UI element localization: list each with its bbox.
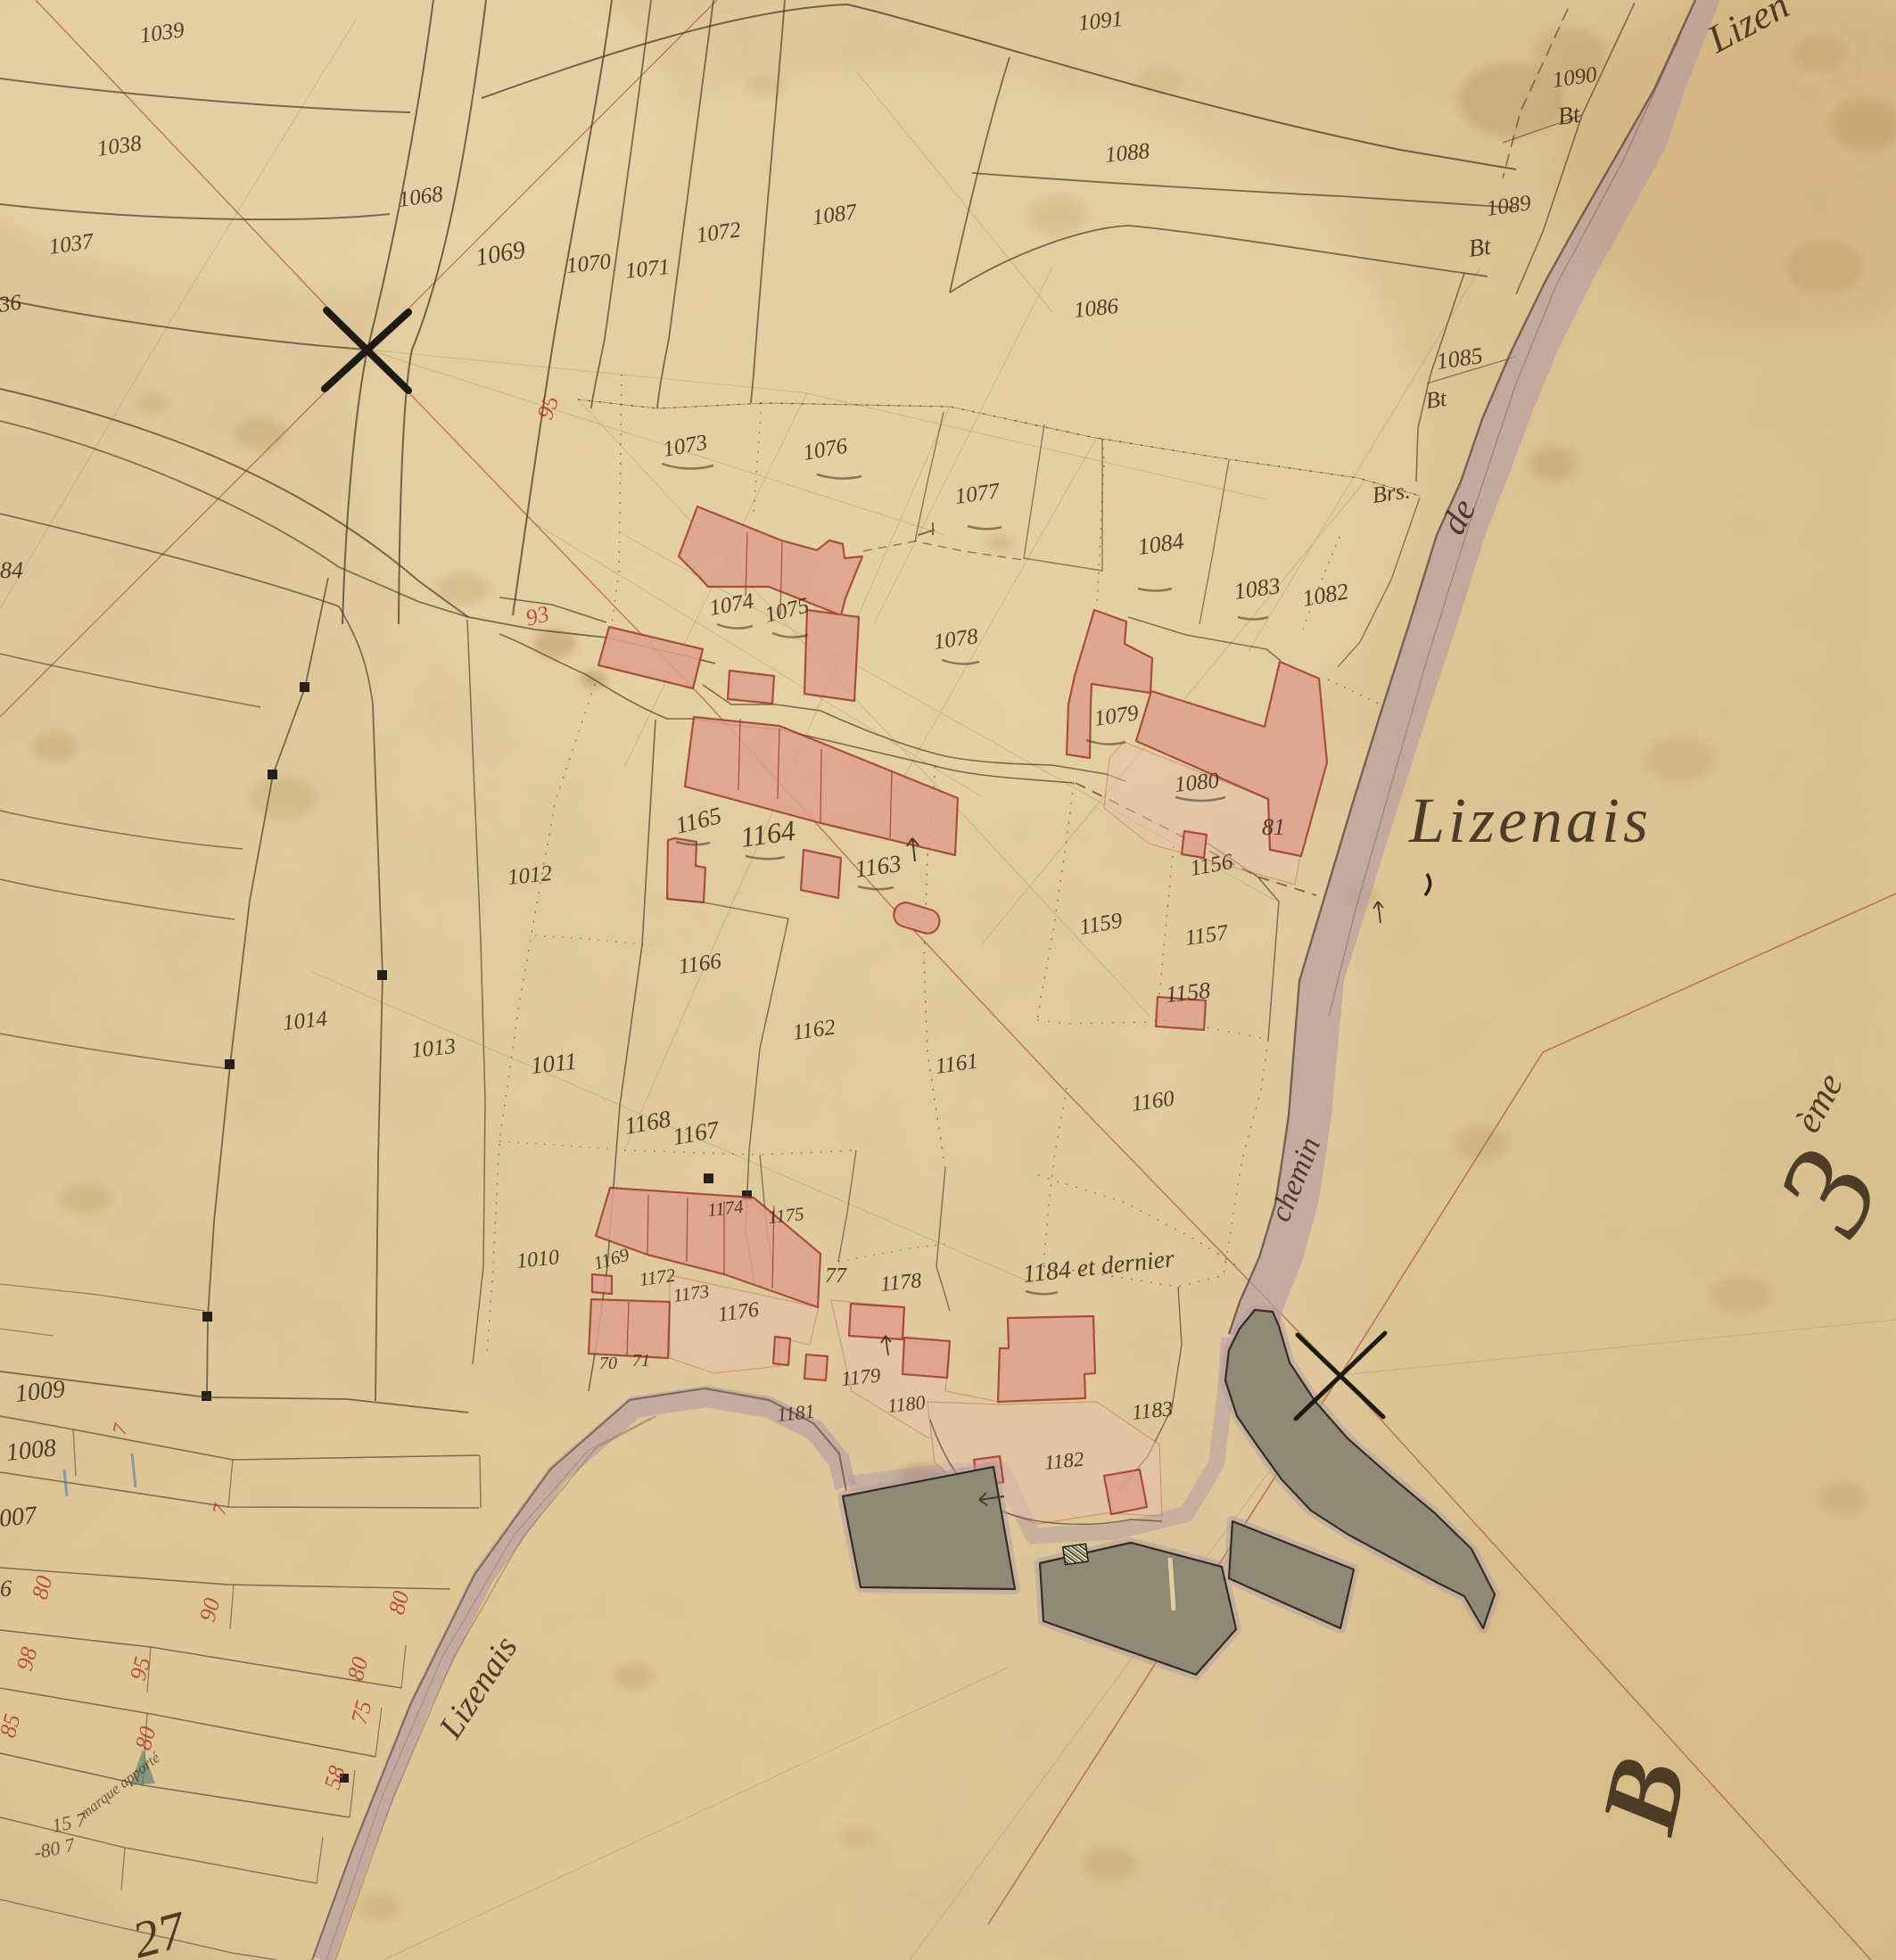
svg-text:1086: 1086 — [1073, 294, 1120, 323]
svg-text:1182: 1182 — [1043, 1447, 1085, 1473]
svg-text:1181: 1181 — [776, 1400, 816, 1426]
svg-text:1014: 1014 — [282, 1007, 329, 1035]
svg-text:1071: 1071 — [624, 255, 672, 284]
svg-text:1070: 1070 — [565, 250, 613, 278]
svg-text:1080: 1080 — [1174, 769, 1221, 797]
svg-text:1012: 1012 — [507, 861, 554, 890]
svg-text:84: 84 — [0, 557, 23, 583]
svg-text:1008: 1008 — [4, 1434, 57, 1467]
svg-text:1175: 1175 — [767, 1203, 805, 1228]
svg-text:1011: 1011 — [529, 1048, 578, 1079]
svg-text:1174: 1174 — [706, 1196, 745, 1221]
svg-text:1091: 1091 — [1077, 7, 1125, 36]
svg-text:70: 70 — [599, 1354, 617, 1373]
svg-text:Brs.: Brs. — [1371, 477, 1412, 508]
svg-text:1010: 1010 — [515, 1246, 560, 1273]
svg-text:1183: 1183 — [1131, 1397, 1175, 1425]
svg-text:1179: 1179 — [840, 1363, 882, 1390]
svg-text:1158: 1158 — [1165, 977, 1212, 1008]
svg-text:1013: 1013 — [410, 1034, 458, 1063]
svg-text:1088: 1088 — [1104, 139, 1151, 168]
svg-text:36: 36 — [0, 291, 23, 317]
svg-text:Lizenais: Lizenais — [1408, 785, 1652, 856]
svg-text:77: 77 — [825, 1264, 847, 1288]
svg-text:Bt: Bt — [1424, 385, 1449, 414]
svg-text:6: 6 — [0, 1576, 12, 1602]
svg-text:71: 71 — [632, 1351, 650, 1371]
svg-text:1178: 1178 — [879, 1269, 923, 1297]
svg-text:1180: 1180 — [886, 1391, 927, 1417]
svg-text:81: 81 — [1262, 814, 1285, 840]
svg-text:007: 007 — [0, 1502, 38, 1533]
svg-text:1009: 1009 — [13, 1375, 66, 1408]
